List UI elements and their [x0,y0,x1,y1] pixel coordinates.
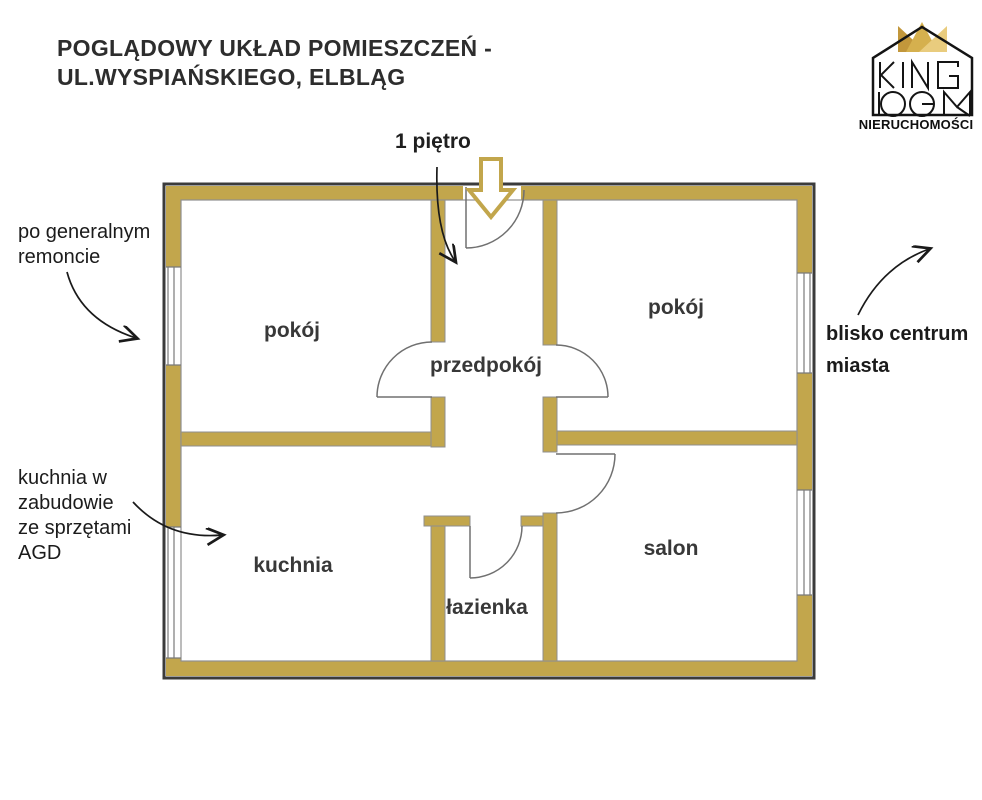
arrow-renovation [67,272,136,338]
doors [377,187,615,578]
arrow-location [858,249,929,315]
floor-plan-graphic [0,0,982,800]
annotation-kitchen-line3: ze sprzętami [18,516,131,541]
page-title-line1: POGLĄDOWY UKŁAD POMIESZCZEŃ - [57,34,492,63]
window-left-kitchen [166,527,181,658]
room-label-pokoj-top-left: pokój [264,319,320,343]
floor-plan-page: POGLĄDOWY UKŁAD POMIESZCZEŃ - UL.WYSPIAŃ… [0,0,982,800]
room-left-door-arc [377,342,432,397]
annotation-location-line2: miasta [826,350,968,382]
annotation-location-line1: blisko centrum [826,318,968,350]
logo-subtitle: NIERUCHOMOŚCI [854,117,978,132]
annotation-kitchen-line2: zabudowie [18,491,131,516]
entrance-arrow-icon [469,159,513,217]
page-title-line2: UL.WYSPIAŃSKIEGO, ELBLĄG [57,63,492,92]
kingdom-logo [873,22,972,116]
annotation-kitchen: kuchnia w zabudowie ze sprzętami AGD [18,466,131,566]
room-right-door-arc [556,345,608,397]
annotation-kitchen-line1: kuchnia w [18,466,131,491]
page-title: POGLĄDOWY UKŁAD POMIESZCZEŃ - UL.WYSPIAŃ… [57,34,492,92]
room-label-kuchnia: kuchnia [253,554,332,578]
room-label-pokoj-top-right: pokój [648,296,704,320]
logo-brand-letters [879,62,970,116]
annotation-renovation-line1: po generalnym [18,220,150,245]
room-label-przedpokoj: przedpokój [430,354,542,378]
bathroom-door-arc [470,526,522,578]
interior-walls [181,200,797,661]
room-label-salon: salon [644,537,699,561]
window-left-room [166,267,181,365]
window-right-room [797,273,812,373]
room-label-lazienka: łazienka [446,596,528,620]
living-room-door-arc [556,454,615,513]
annotation-kitchen-line4: AGD [18,541,131,566]
annotation-location: blisko centrum miasta [826,318,968,382]
annotation-renovation: po generalnym remoncie [18,220,150,270]
window-right-living-room [797,490,812,595]
floor-label: 1 piętro [395,130,471,154]
annotation-renovation-line2: remoncie [18,245,150,270]
